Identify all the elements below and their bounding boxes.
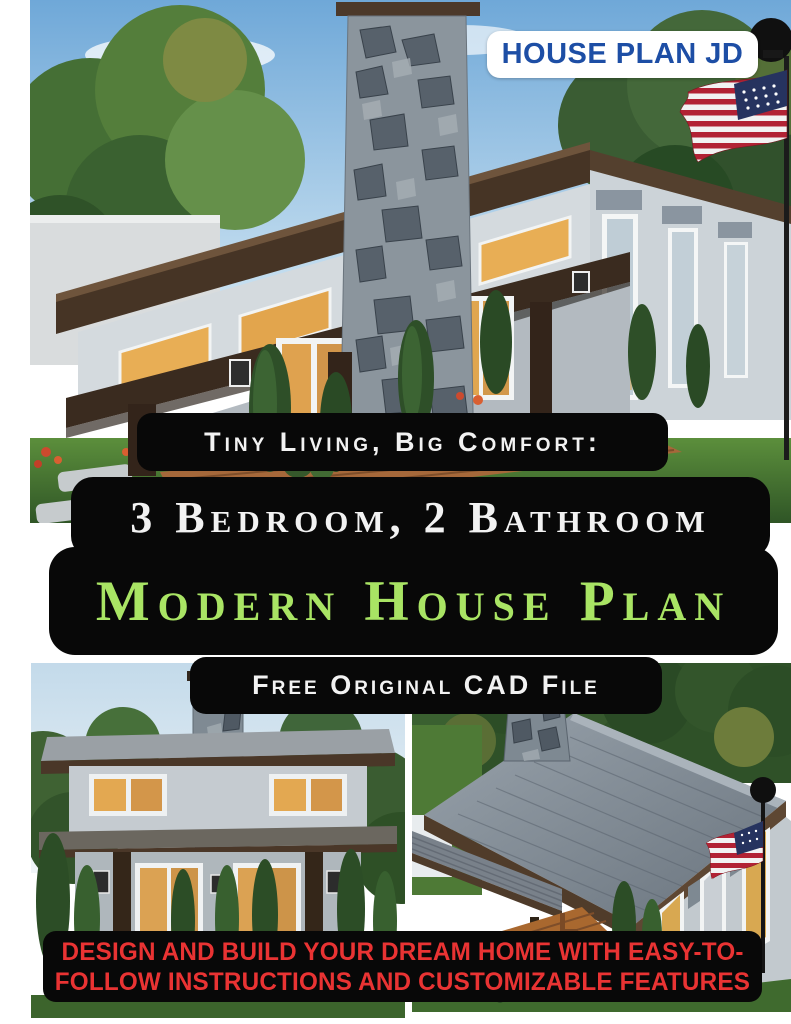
headline-bedrooms-band: 3 Bedroom, 2 Bathroom [71, 477, 770, 558]
footer-line-1: DESIGN AND BUILD YOUR DREAM HOME WITH EA… [61, 937, 743, 967]
headline-kicker-band: Tiny Living, Big Comfort: [137, 413, 668, 471]
boundary-wall-cap [30, 215, 220, 223]
headline-title-band: Modern House Plan [49, 547, 778, 655]
headline-sub: Free Original CAD File [252, 670, 600, 701]
footer-line-2: FOLLOW INSTRUCTIONS AND CUSTOMIZABLE FEA… [55, 967, 750, 997]
headline-bedrooms: 3 Bedroom, 2 Bathroom [130, 492, 710, 543]
picture-frame [230, 360, 250, 386]
brand-badge: HOUSE PLAN JD [487, 31, 758, 78]
headline-title: Modern House Plan [96, 569, 731, 634]
headline-sub-band: Free Original CAD File [190, 657, 662, 714]
footer-band: DESIGN AND BUILD YOUR DREAM HOME WITH EA… [43, 931, 762, 1002]
picture-frame [573, 272, 589, 292]
headline-kicker: Tiny Living, Big Comfort: [204, 427, 601, 458]
book-cover: HOUSE PLAN JD Tiny Living, Big Comfort: … [0, 0, 791, 1024]
brand-badge-label: HOUSE PLAN JD [502, 38, 744, 71]
